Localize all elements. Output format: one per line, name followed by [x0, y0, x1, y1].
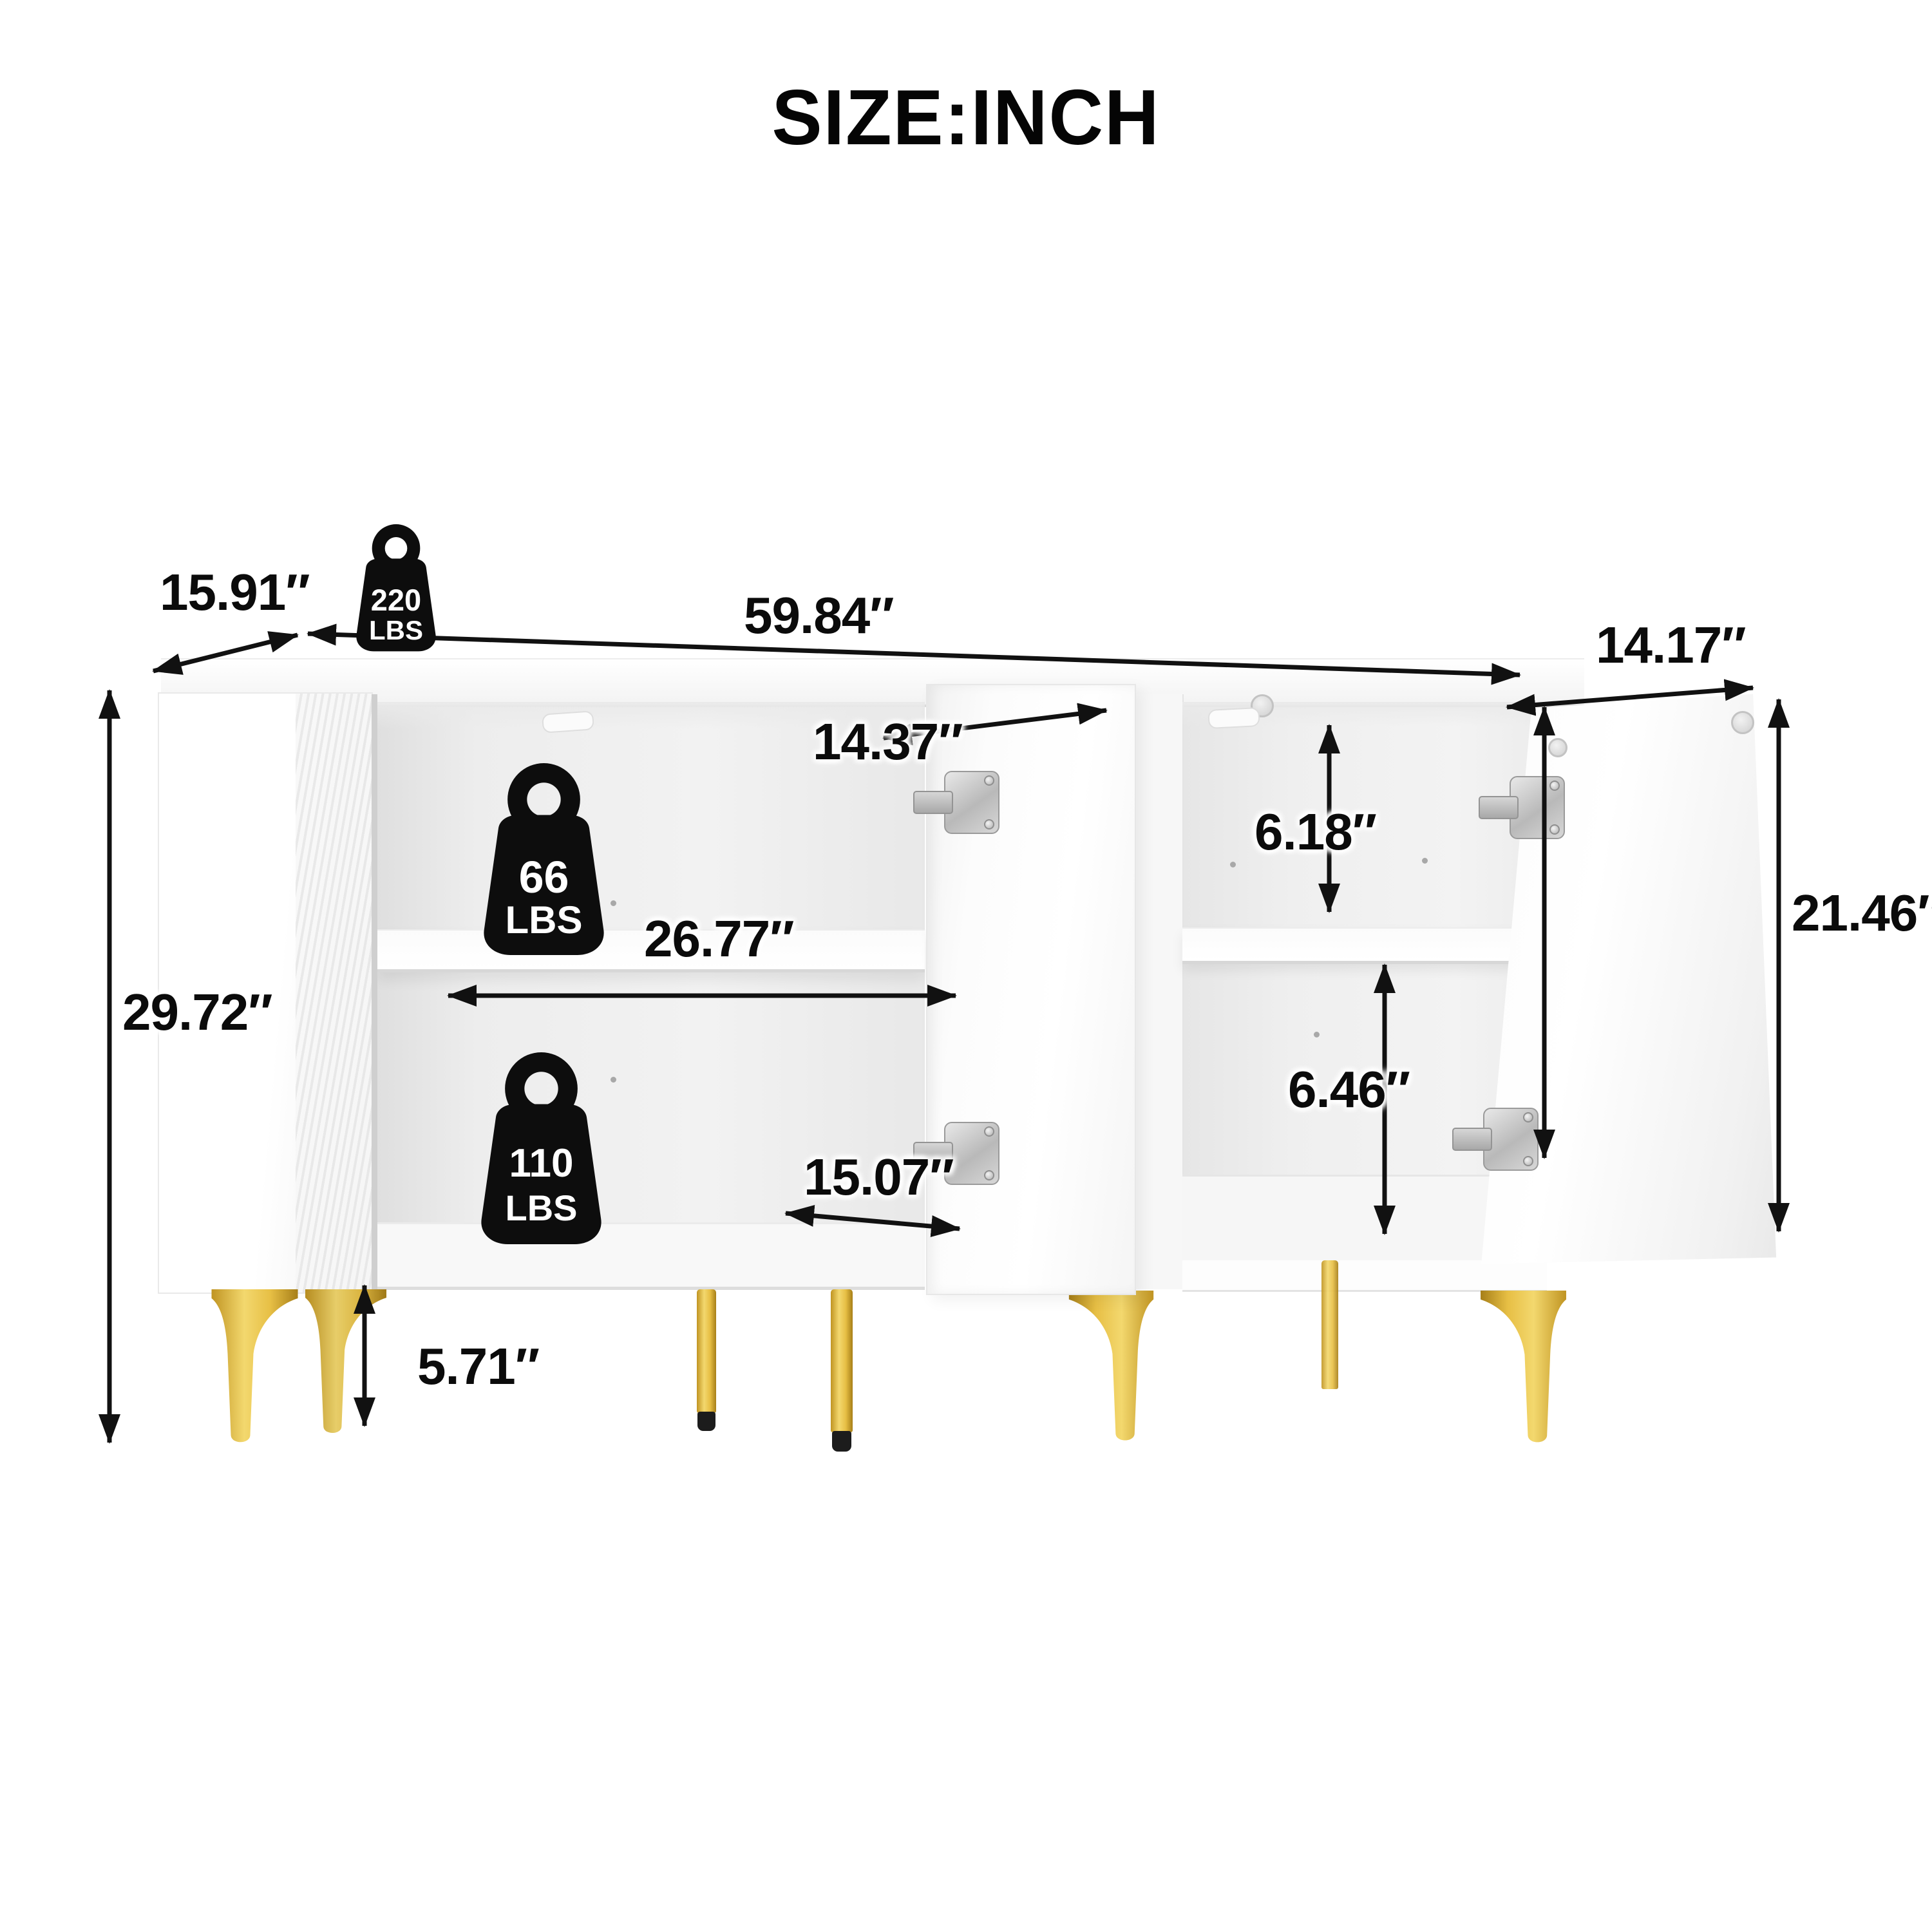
- label-overall-height: 29.72″: [122, 987, 272, 1038]
- arrow-overall-width: [308, 634, 1520, 675]
- dimension-arrows-layer: [0, 0, 1932, 1932]
- capacity-unit: LBS: [349, 617, 443, 644]
- weight-capacity-icon-top: 220 LBS: [349, 524, 443, 653]
- label-leg-height: 5.71″: [417, 1341, 539, 1392]
- weight-capacity-icon-shelf: 66 LBS: [478, 763, 610, 958]
- label-overall-width: 59.84″: [744, 590, 894, 641]
- product-dimension-diagram: SIZE:INCH: [0, 0, 1932, 1932]
- arrow-left-opening-bottom-width: [786, 1213, 960, 1229]
- capacity-unit: LBS: [478, 901, 610, 940]
- capacity-value: 66: [478, 855, 610, 900]
- arrow-overall-depth: [153, 635, 298, 671]
- label-left-opening-top-width: 14.37″: [813, 716, 963, 768]
- capacity-value: 110: [475, 1144, 607, 1184]
- weight-capacity-icon-bottom: 110 LBS: [475, 1052, 607, 1247]
- label-shelf-span-width: 26.77″: [644, 913, 794, 965]
- capacity-unit: LBS: [475, 1190, 607, 1226]
- arrow-door-width: [1507, 688, 1753, 707]
- label-overall-depth: 15.91″: [160, 567, 310, 618]
- label-left-opening-bottom-width: 15.07″: [804, 1151, 954, 1203]
- label-door-height: 21.46″: [1792, 887, 1932, 939]
- page-title: SIZE:INCH: [772, 72, 1160, 162]
- label-right-upper-opening-height: 6.18″: [1255, 806, 1376, 858]
- label-right-lower-opening-height: 6.46″: [1288, 1064, 1410, 1115]
- capacity-value: 220: [349, 585, 443, 615]
- label-door-width: 14.17″: [1596, 620, 1746, 671]
